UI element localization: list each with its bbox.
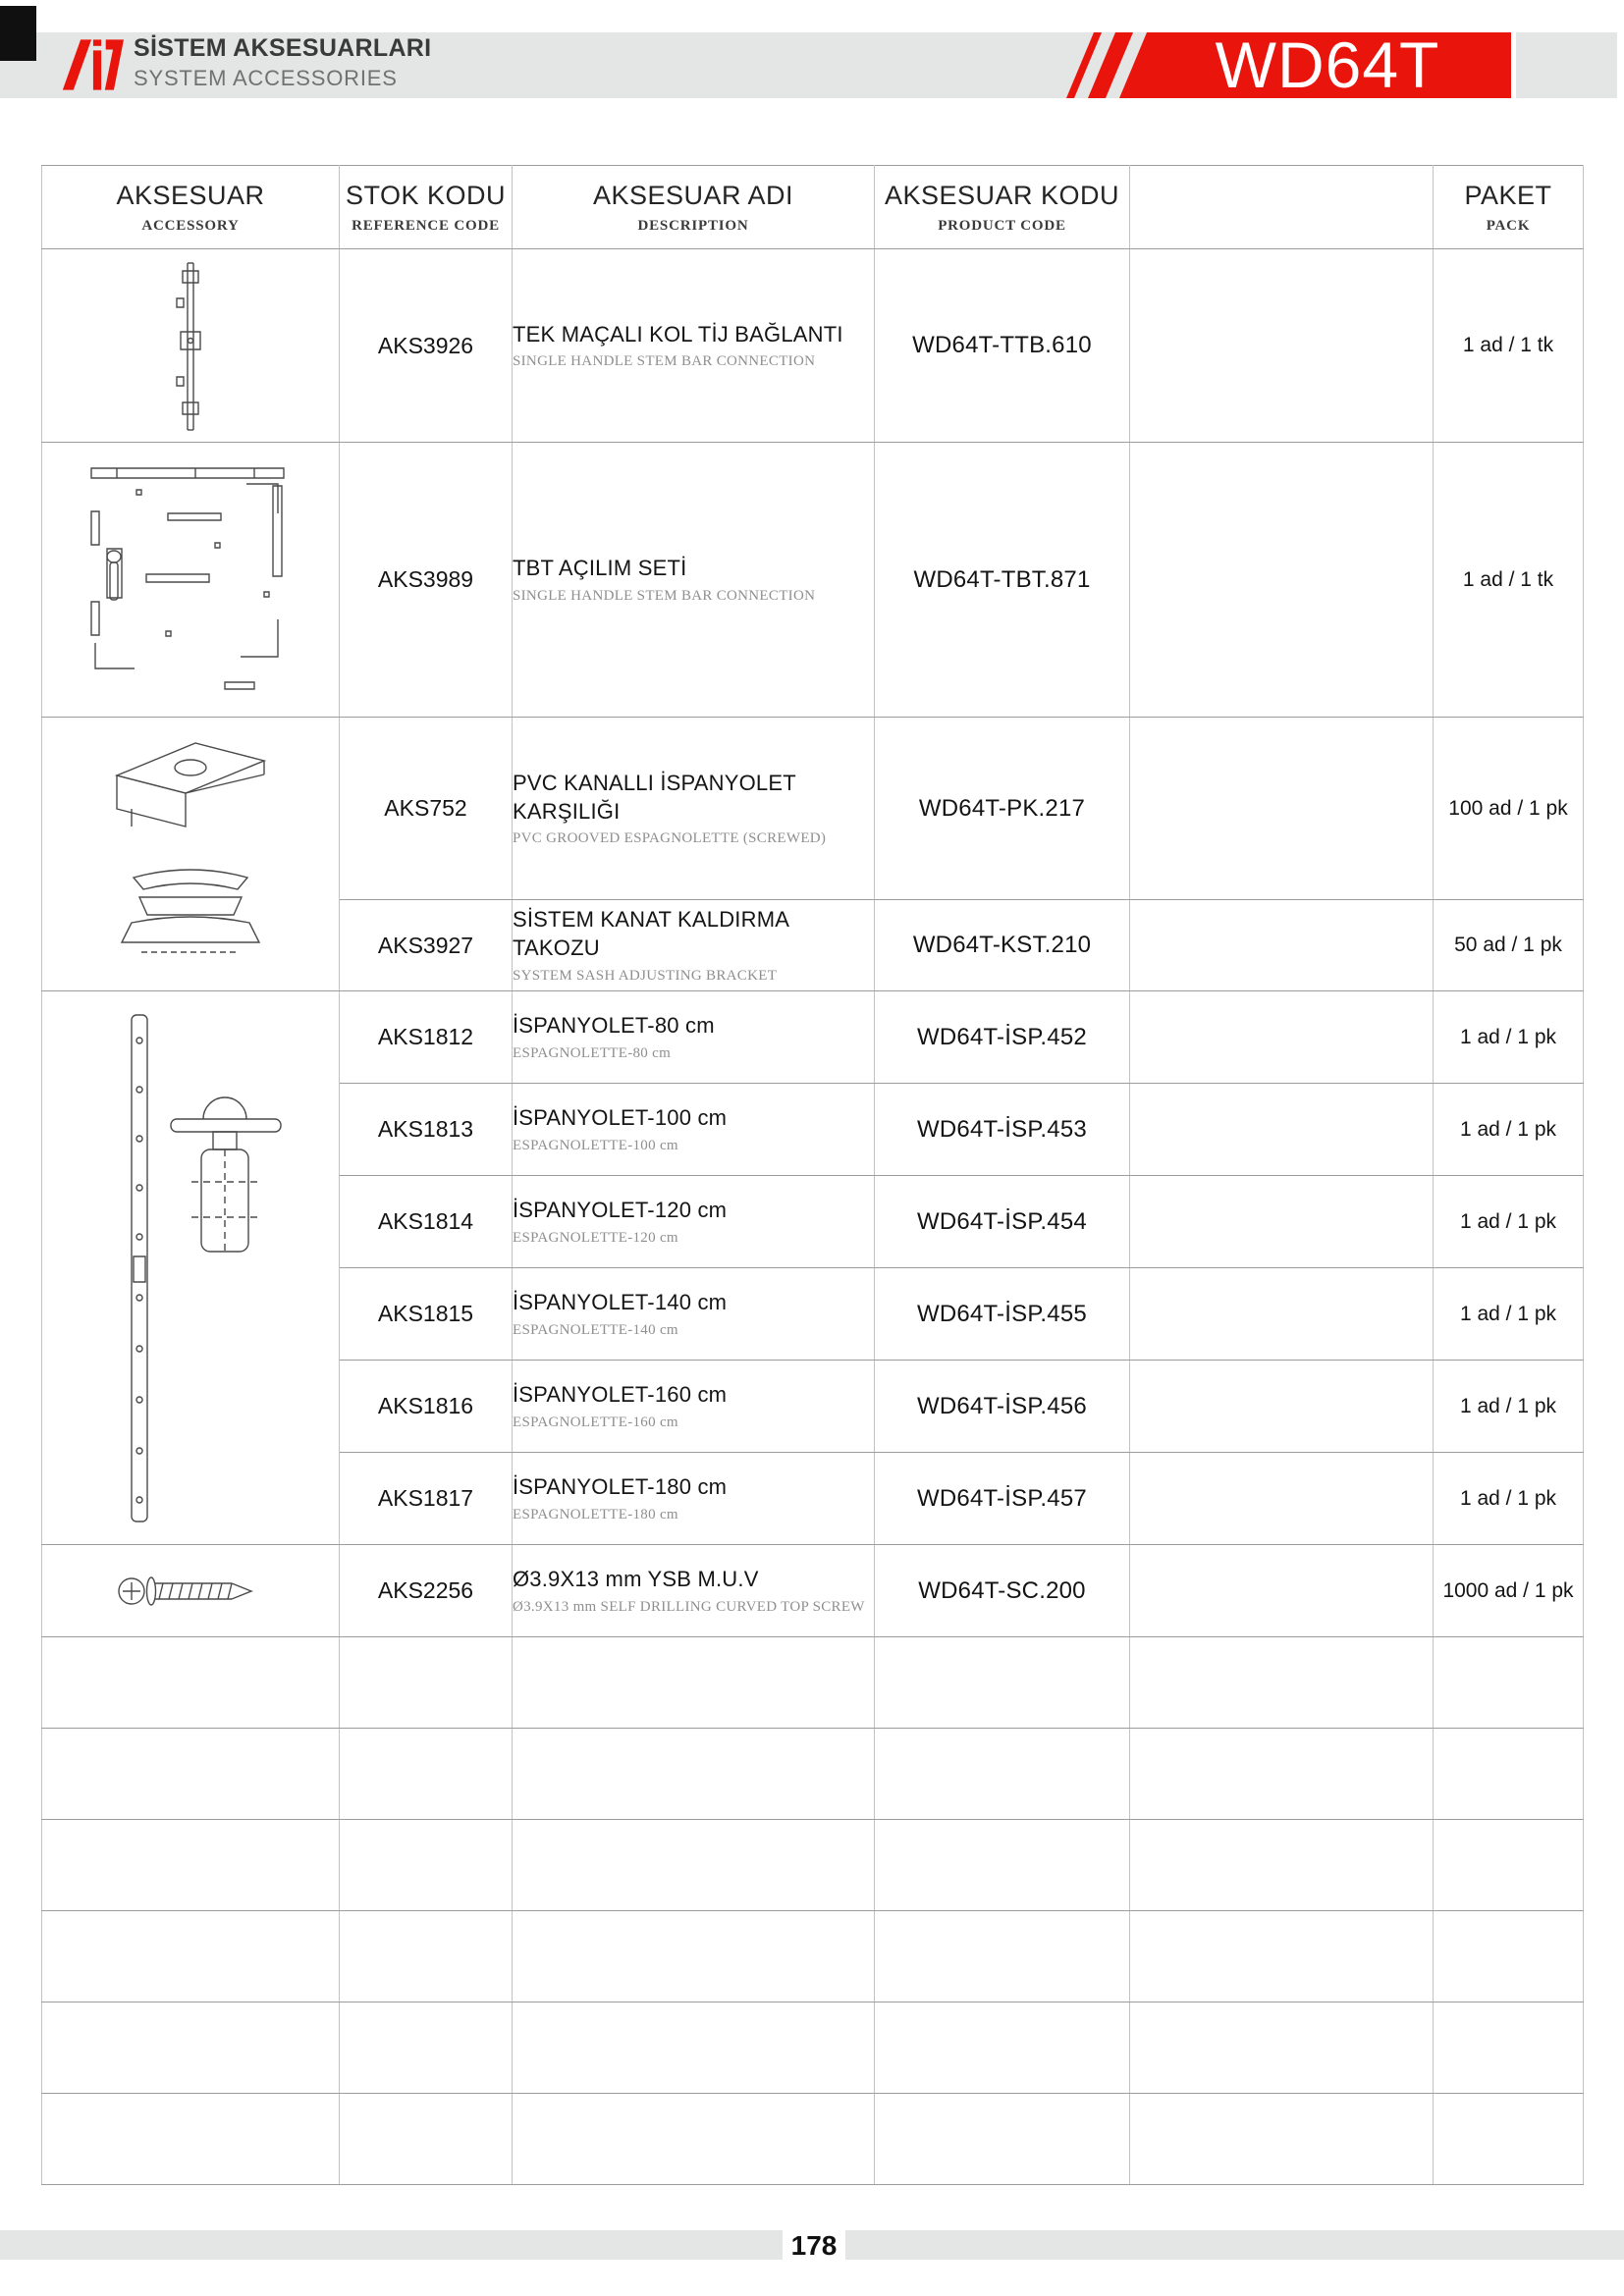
description-subtitle: SINGLE HANDLE STEM BAR CONNECTION bbox=[513, 587, 874, 605]
empty-cell bbox=[340, 1637, 513, 1729]
product-code: WD64T-İSP.456 bbox=[875, 1361, 1130, 1453]
blank-cell bbox=[1130, 1545, 1434, 1637]
empty-row bbox=[42, 1820, 1584, 1911]
reference-code: AKS1813 bbox=[340, 1084, 513, 1176]
reference-code: AKS2256 bbox=[340, 1545, 513, 1637]
product-code: WD64T-KST.210 bbox=[875, 900, 1130, 991]
pack-quantity: 1 ad / 1 tk bbox=[1434, 249, 1584, 443]
empty-cell bbox=[42, 1911, 340, 2002]
empty-row bbox=[42, 1911, 1584, 2002]
empty-cell bbox=[340, 2002, 513, 2094]
description-title: İSPANYOLET-80 cm bbox=[513, 1012, 874, 1041]
header-bar: SİSTEM AKSESUARLARI SYSTEM ACCESSORIES W… bbox=[0, 32, 1617, 98]
description-title: İSPANYOLET-120 cm bbox=[513, 1197, 874, 1225]
empty-cell bbox=[42, 2094, 340, 2185]
col-header-reference-code: STOK KODU REFERENCE CODE bbox=[340, 166, 513, 249]
col-header-pack: PAKET PACK bbox=[1434, 166, 1584, 249]
empty-cell bbox=[875, 1729, 1130, 1820]
empty-cell bbox=[1434, 1911, 1584, 2002]
product-code: WD64T-TTB.610 bbox=[875, 249, 1130, 443]
accessory-image-cell bbox=[42, 249, 340, 443]
blank-cell bbox=[1130, 991, 1434, 1084]
tilt-turn-set-drawing bbox=[78, 454, 303, 705]
empty-row bbox=[42, 2002, 1584, 2094]
description-cell: İSPANYOLET-160 cm ESPAGNOLETTE-160 cm bbox=[513, 1361, 875, 1453]
header-titles: SİSTEM AKSESUARLARI SYSTEM ACCESSORIES bbox=[134, 36, 431, 89]
empty-cell bbox=[42, 1820, 340, 1911]
empty-cell bbox=[1434, 1820, 1584, 1911]
reference-code: AKS1816 bbox=[340, 1361, 513, 1453]
empty-row bbox=[42, 1729, 1584, 1820]
pack-quantity: 1 ad / 1 pk bbox=[1434, 991, 1584, 1084]
empty-cell bbox=[513, 2094, 875, 2185]
description-title: TBT AÇILIM SETİ bbox=[513, 555, 874, 583]
empty-cell bbox=[42, 2002, 340, 2094]
brand-logo-icon bbox=[61, 35, 124, 94]
empty-cell bbox=[513, 1637, 875, 1729]
empty-cell bbox=[513, 1911, 875, 2002]
description-subtitle: Ø3.9X13 mm SELF DRILLING CURVED TOP SCRE… bbox=[513, 1598, 874, 1616]
espagnolette-striker-drawing bbox=[102, 731, 279, 844]
espagnolette-bar-drawing bbox=[73, 1003, 308, 1533]
blank-cell bbox=[1130, 1361, 1434, 1453]
empty-cell bbox=[875, 2094, 1130, 2185]
description-subtitle: ESPAGNOLETTE-100 cm bbox=[513, 1137, 874, 1154]
reference-code: AKS1815 bbox=[340, 1268, 513, 1361]
reference-code: AKS1812 bbox=[340, 991, 513, 1084]
self-drilling-screw-drawing bbox=[112, 1561, 269, 1622]
blank-cell bbox=[1130, 443, 1434, 718]
product-code: WD64T-SC.200 bbox=[875, 1545, 1130, 1637]
empty-cell bbox=[42, 1637, 340, 1729]
page-edge-tab bbox=[0, 6, 36, 61]
product-code: WD64T-İSP.452 bbox=[875, 991, 1130, 1084]
empty-cell bbox=[340, 2094, 513, 2185]
empty-cell bbox=[1130, 1637, 1434, 1729]
pack-quantity: 1 ad / 1 pk bbox=[1434, 1176, 1584, 1268]
description-cell: TBT AÇILIM SETİ SINGLE HANDLE STEM BAR C… bbox=[513, 443, 875, 718]
empty-cell bbox=[1130, 1820, 1434, 1911]
description-title: İSPANYOLET-160 cm bbox=[513, 1381, 874, 1410]
description-subtitle: SINGLE HANDLE STEM BAR CONNECTION bbox=[513, 352, 874, 370]
col-header-accessory: AKSESUAR ACCESSORY bbox=[42, 166, 340, 249]
description-title: İSPANYOLET-180 cm bbox=[513, 1473, 874, 1502]
table-row: AKS1812 İSPANYOLET-80 cm ESPAGNOLETTE-80… bbox=[42, 991, 1584, 1084]
product-code: WD64T-İSP.457 bbox=[875, 1453, 1130, 1545]
table-row: AKS2256 Ø3.9X13 mm YSB M.U.V Ø3.9X13 mm … bbox=[42, 1545, 1584, 1637]
pack-quantity: 1 ad / 1 pk bbox=[1434, 1361, 1584, 1453]
pack-quantity: 100 ad / 1 pk bbox=[1434, 718, 1584, 900]
empty-cell bbox=[340, 1911, 513, 2002]
empty-cell bbox=[1130, 1729, 1434, 1820]
description-cell: İSPANYOLET-120 cm ESPAGNOLETTE-120 cm bbox=[513, 1176, 875, 1268]
empty-row bbox=[42, 2094, 1584, 2185]
empty-cell bbox=[42, 1729, 340, 1820]
page-title: SİSTEM AKSESUARLARI bbox=[134, 36, 431, 61]
empty-cell bbox=[875, 2002, 1130, 2094]
empty-cell bbox=[1434, 2002, 1584, 2094]
description-cell: TEK MAÇALI KOL TİJ BAĞLANTI SINGLE HANDL… bbox=[513, 249, 875, 443]
table-row: AKS3926 TEK MAÇALI KOL TİJ BAĞLANTI SING… bbox=[42, 249, 1584, 443]
empty-cell bbox=[1434, 1729, 1584, 1820]
description-title: İSPANYOLET-100 cm bbox=[513, 1104, 874, 1133]
description-cell: İSPANYOLET-80 cm ESPAGNOLETTE-80 cm bbox=[513, 991, 875, 1084]
description-cell: SİSTEM KANAT KALDIRMA TAKOZU SYSTEM SASH… bbox=[513, 900, 875, 991]
empty-cell bbox=[875, 1637, 1130, 1729]
description-cell: İSPANYOLET-140 cm ESPAGNOLETTE-140 cm bbox=[513, 1268, 875, 1361]
page-number-box: 178 bbox=[783, 2223, 845, 2268]
blank-cell bbox=[1130, 900, 1434, 991]
pack-quantity: 1000 ad / 1 pk bbox=[1434, 1545, 1584, 1637]
pack-quantity: 1 ad / 1 tk bbox=[1434, 443, 1584, 718]
empty-cell bbox=[1130, 2002, 1434, 2094]
empty-cell bbox=[513, 1820, 875, 1911]
table-header-row: AKSESUAR ACCESSORY STOK KODU REFERENCE C… bbox=[42, 166, 1584, 249]
description-title: Ø3.9X13 mm YSB M.U.V bbox=[513, 1566, 874, 1594]
single-handle-stem-bar-drawing bbox=[132, 257, 249, 434]
reference-code: AKS752 bbox=[340, 718, 513, 900]
blank-cell bbox=[1130, 1084, 1434, 1176]
empty-cell bbox=[1434, 2094, 1584, 2185]
col-header-blank bbox=[1130, 166, 1434, 249]
table-row: AKS752 PVC KANALLI İSPANYOLET KARŞILIĞI … bbox=[42, 718, 1584, 900]
empty-cell bbox=[875, 1820, 1130, 1911]
blank-cell bbox=[1130, 1176, 1434, 1268]
empty-cell bbox=[875, 1911, 1130, 2002]
accessory-image-cell bbox=[42, 1545, 340, 1637]
description-subtitle: ESPAGNOLETTE-120 cm bbox=[513, 1229, 874, 1247]
catalog-page: SİSTEM AKSESUARLARI SYSTEM ACCESSORIES W… bbox=[0, 0, 1624, 2296]
reference-code: AKS1814 bbox=[340, 1176, 513, 1268]
empty-cell bbox=[1434, 1637, 1584, 1729]
pack-quantity: 1 ad / 1 pk bbox=[1434, 1453, 1584, 1545]
description-title: PVC KANALLI İSPANYOLET KARŞILIĞI bbox=[513, 770, 874, 826]
badge-divider bbox=[1511, 32, 1516, 98]
accessory-image-cell bbox=[42, 991, 340, 1545]
product-code: WD64T-İSP.454 bbox=[875, 1176, 1130, 1268]
description-subtitle: ESPAGNOLETTE-160 cm bbox=[513, 1414, 874, 1431]
reference-code: AKS1817 bbox=[340, 1453, 513, 1545]
description-subtitle: PVC GROOVED ESPAGNOLETTE (SCREWED) bbox=[513, 829, 874, 847]
description-cell: İSPANYOLET-100 cm ESPAGNOLETTE-100 cm bbox=[513, 1084, 875, 1176]
empty-cell bbox=[513, 1729, 875, 1820]
reference-code: AKS3927 bbox=[340, 900, 513, 991]
sash-adjusting-bracket-drawing bbox=[112, 854, 269, 977]
description-title: İSPANYOLET-140 cm bbox=[513, 1289, 874, 1317]
description-title: SİSTEM KANAT KALDIRMA TAKOZU bbox=[513, 906, 874, 962]
pack-quantity: 50 ad / 1 pk bbox=[1434, 900, 1584, 991]
pack-quantity: 1 ad / 1 pk bbox=[1434, 1268, 1584, 1361]
description-cell: Ø3.9X13 mm YSB M.U.V Ø3.9X13 mm SELF DRI… bbox=[513, 1545, 875, 1637]
col-header-description: AKSESUAR ADI DESCRIPTION bbox=[513, 166, 875, 249]
col-header-product-code: AKSESUAR KODU PRODUCT CODE bbox=[875, 166, 1130, 249]
empty-cell bbox=[513, 2002, 875, 2094]
product-code: WD64T-İSP.453 bbox=[875, 1084, 1130, 1176]
description-subtitle: ESPAGNOLETTE-180 cm bbox=[513, 1506, 874, 1523]
table-row: AKS3989 TBT AÇILIM SETİ SINGLE HANDLE ST… bbox=[42, 443, 1584, 718]
blank-cell bbox=[1130, 1453, 1434, 1545]
pack-quantity: 1 ad / 1 pk bbox=[1434, 1084, 1584, 1176]
reference-code: AKS3926 bbox=[340, 249, 513, 443]
series-badge: WD64T bbox=[1064, 32, 1511, 98]
blank-cell bbox=[1130, 249, 1434, 443]
empty-cell bbox=[340, 1820, 513, 1911]
description-cell: İSPANYOLET-180 cm ESPAGNOLETTE-180 cm bbox=[513, 1453, 875, 1545]
blank-cell bbox=[1130, 718, 1434, 900]
empty-row bbox=[42, 1637, 1584, 1729]
reference-code: AKS3989 bbox=[340, 443, 513, 718]
product-code: WD64T-TBT.871 bbox=[875, 443, 1130, 718]
description-title: TEK MAÇALI KOL TİJ BAĞLANTI bbox=[513, 321, 874, 349]
description-subtitle: ESPAGNOLETTE-140 cm bbox=[513, 1321, 874, 1339]
product-code: WD64T-PK.217 bbox=[875, 718, 1130, 900]
description-subtitle: SYSTEM SASH ADJUSTING BRACKET bbox=[513, 967, 874, 985]
accessory-image-cell bbox=[42, 443, 340, 718]
blank-cell bbox=[1130, 1268, 1434, 1361]
description-cell: PVC KANALLI İSPANYOLET KARŞILIĞI PVC GRO… bbox=[513, 718, 875, 900]
empty-cell bbox=[1130, 1911, 1434, 2002]
page-number: 178 bbox=[791, 2230, 838, 2262]
description-subtitle: ESPAGNOLETTE-80 cm bbox=[513, 1044, 874, 1062]
accessories-table: AKSESUAR ACCESSORY STOK KODU REFERENCE C… bbox=[41, 165, 1584, 2185]
empty-cell bbox=[1130, 2094, 1434, 2185]
empty-cell bbox=[340, 1729, 513, 1820]
series-badge-label: WD64T bbox=[1216, 32, 1440, 98]
page-subtitle: SYSTEM ACCESSORIES bbox=[134, 68, 431, 89]
product-code: WD64T-İSP.455 bbox=[875, 1268, 1130, 1361]
accessory-image-cell bbox=[42, 718, 340, 991]
